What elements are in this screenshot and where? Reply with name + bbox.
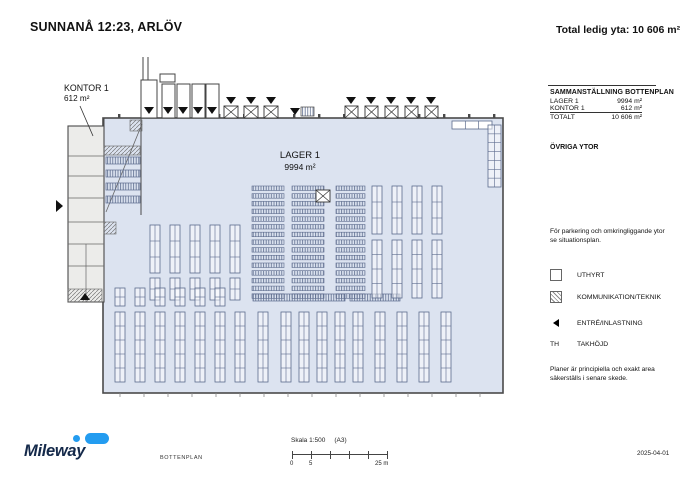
ruler-tick: [368, 451, 369, 459]
lager-name: LAGER 1: [268, 150, 332, 162]
uthyrt-swatch: [550, 269, 562, 281]
ruler-tick: [330, 451, 331, 459]
ceiling-height-abbr: TH: [550, 341, 559, 348]
paper-size-label: (A3): [334, 437, 346, 444]
ruler-tick: [292, 451, 293, 459]
ruler-label-5: 5: [309, 461, 312, 467]
kontor-name: KONTOR 1: [64, 83, 109, 94]
kommunikation-swatch-wrap: [550, 291, 577, 303]
ruler-tick: [349, 451, 350, 459]
kontor-area: 612 m²: [64, 94, 109, 105]
info-panel: SAMMANSTÄLLNING BOTTENPLAN LAGER 1 9994 …: [548, 82, 698, 402]
other-areas-title: ÖVRIGA YTOR: [550, 144, 599, 151]
ruler-label-25: 25 m: [375, 461, 388, 467]
ruler-label-0: 0: [290, 461, 293, 467]
kontor-label: KONTOR 1 612 m²: [64, 83, 109, 105]
scale-ruler: 0 5 25 m: [292, 454, 387, 455]
lager-label: LAGER 1 9994 m²: [268, 150, 332, 173]
entrance-arrow-icon: [553, 319, 559, 327]
mileway-wordmark: Mileway: [24, 442, 85, 461]
scale-label: Skala 1:500: [291, 437, 325, 444]
drawing-type-label: BOTTENPLAN: [160, 455, 203, 461]
legend-label: UTHYRT: [577, 272, 604, 279]
summary-label: TOTALT: [550, 114, 575, 121]
drawing-date: 2025-04-01: [637, 450, 669, 457]
legend-item-entre: ENTRÉ/INLASTNING: [550, 316, 643, 330]
logo-dot-icon: [73, 435, 80, 442]
takhojd-swatch-wrap: TH: [550, 341, 577, 348]
legend-label: ENTRÉ/INLASTNING: [577, 320, 643, 327]
ruler-tick: [387, 451, 388, 459]
legend-label: KOMMUNIKATION/TEKNIK: [577, 294, 661, 301]
scale-bar: Skala 1:500(A3) 0 5 25 m: [291, 437, 401, 444]
ruler-tick: [311, 451, 312, 459]
summary-label: LAGER 1: [550, 98, 579, 105]
summary-title: SAMMANSTÄLLNING BOTTENPLAN: [550, 89, 674, 96]
uthyrt-swatch-wrap: [550, 269, 577, 281]
summary-value: 612 m²: [621, 105, 642, 112]
legend-item-kommunikation: KOMMUNIKATION/TEKNIK: [550, 290, 661, 304]
floor-plan-page: SUNNANÅ 12:23, ARLÖV Total ledig yta: 10…: [0, 0, 700, 493]
summary-label: KONTOR 1: [550, 105, 585, 112]
summary-row-kontor: KONTOR 1 612 m²: [550, 105, 642, 112]
legend-label: TAKHÖJD: [577, 341, 608, 348]
summary-value: 10 606 m²: [611, 114, 642, 121]
legend-item-uthyrt: UTHYRT: [550, 268, 604, 282]
panel-divider: [548, 85, 656, 86]
entre-swatch-wrap: [550, 319, 577, 327]
lager-area: 9994 m²: [268, 162, 332, 173]
disclaimer-note: Planer är principiella och exakt area sä…: [550, 366, 656, 384]
hatch-swatch: [550, 291, 562, 303]
summary-row-total: TOTALT 10 606 m²: [550, 112, 642, 121]
legend-item-takhojd: TH TAKHÖJD: [550, 337, 608, 351]
parking-note: För parkering och omkringliggande ytor s…: [550, 228, 670, 246]
mileway-logo: Mileway: [24, 429, 124, 467]
summary-value: 9994 m²: [617, 98, 642, 105]
summary-row-lager: LAGER 1 9994 m²: [550, 98, 642, 105]
logo-pill-icon: [85, 433, 109, 444]
